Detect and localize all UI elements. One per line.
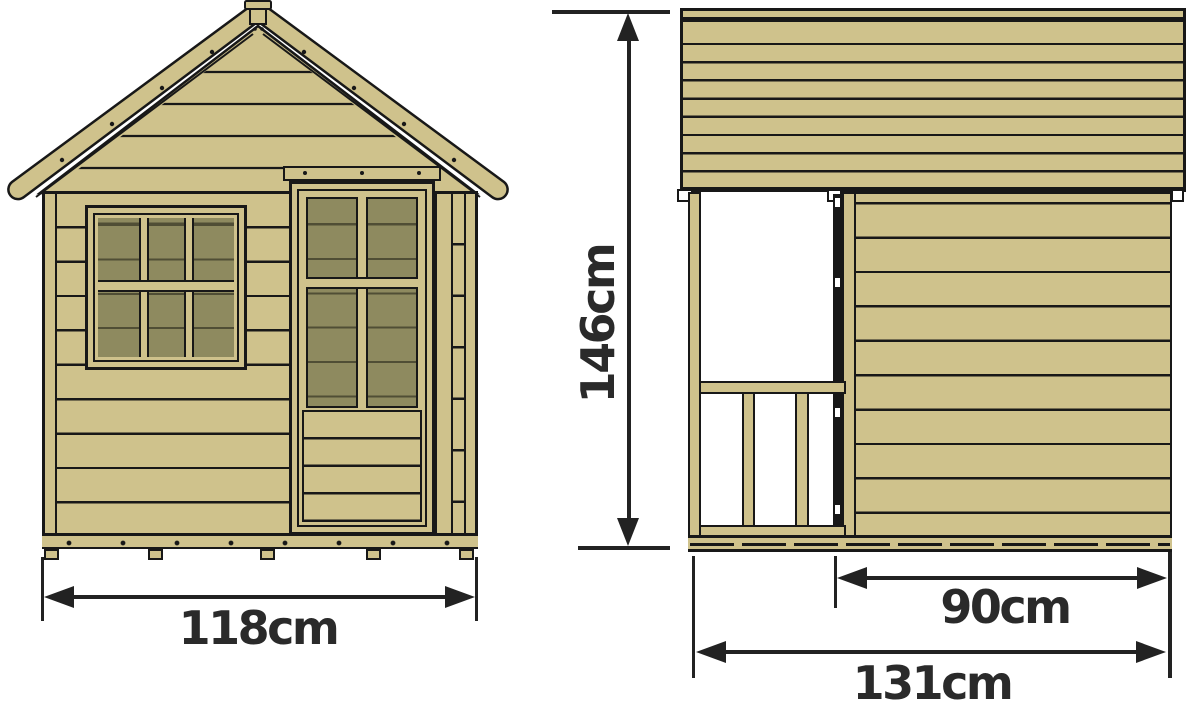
floor-board-dashes (690, 543, 1170, 546)
side-view: 146cm 90cm 131cm (0, 0, 1200, 712)
dim-131-label: 131cm (832, 656, 1032, 710)
hinge-mark (835, 505, 840, 514)
dim-right-extension (1168, 552, 1172, 678)
dim-146-arrowhead-top (617, 13, 639, 41)
side-roof (680, 8, 1186, 192)
playhouse-dimension-diagram: 118cm (0, 0, 1200, 712)
dim-90-arrowhead-left (837, 567, 867, 589)
floor-band (688, 535, 1172, 552)
side-wall-siding-lines (856, 194, 1170, 535)
roof-bracket-right (1171, 189, 1184, 202)
dim-90-arrowhead-right (1137, 567, 1167, 589)
hinge-mark (835, 278, 840, 287)
dim-146-tick-top (552, 10, 670, 14)
porch-baluster (742, 392, 755, 527)
side-roof-plank-lines (683, 27, 1183, 187)
dim-146-arrowhead-bottom (617, 518, 639, 546)
dim-131-line (722, 650, 1142, 654)
hinge-mark (835, 198, 840, 207)
porch-baluster (795, 392, 809, 527)
dim-90-label: 90cm (905, 580, 1105, 634)
dim-131-arrowhead-left (696, 641, 726, 663)
open-door-edge (833, 194, 842, 528)
dim-146-tick-bottom (578, 546, 670, 550)
dim-146-label: 146cm (571, 224, 625, 424)
dim-146-line (627, 28, 631, 522)
dim-131-extension-left (692, 556, 695, 678)
porch-top-rail (699, 381, 846, 394)
side-wall (842, 192, 1172, 537)
dim-90-line (864, 576, 1140, 580)
side-roof-top-band (683, 17, 1183, 22)
hinge-mark (835, 408, 840, 417)
dim-131-arrowhead-right (1136, 641, 1166, 663)
porch-corner-post (688, 192, 701, 537)
